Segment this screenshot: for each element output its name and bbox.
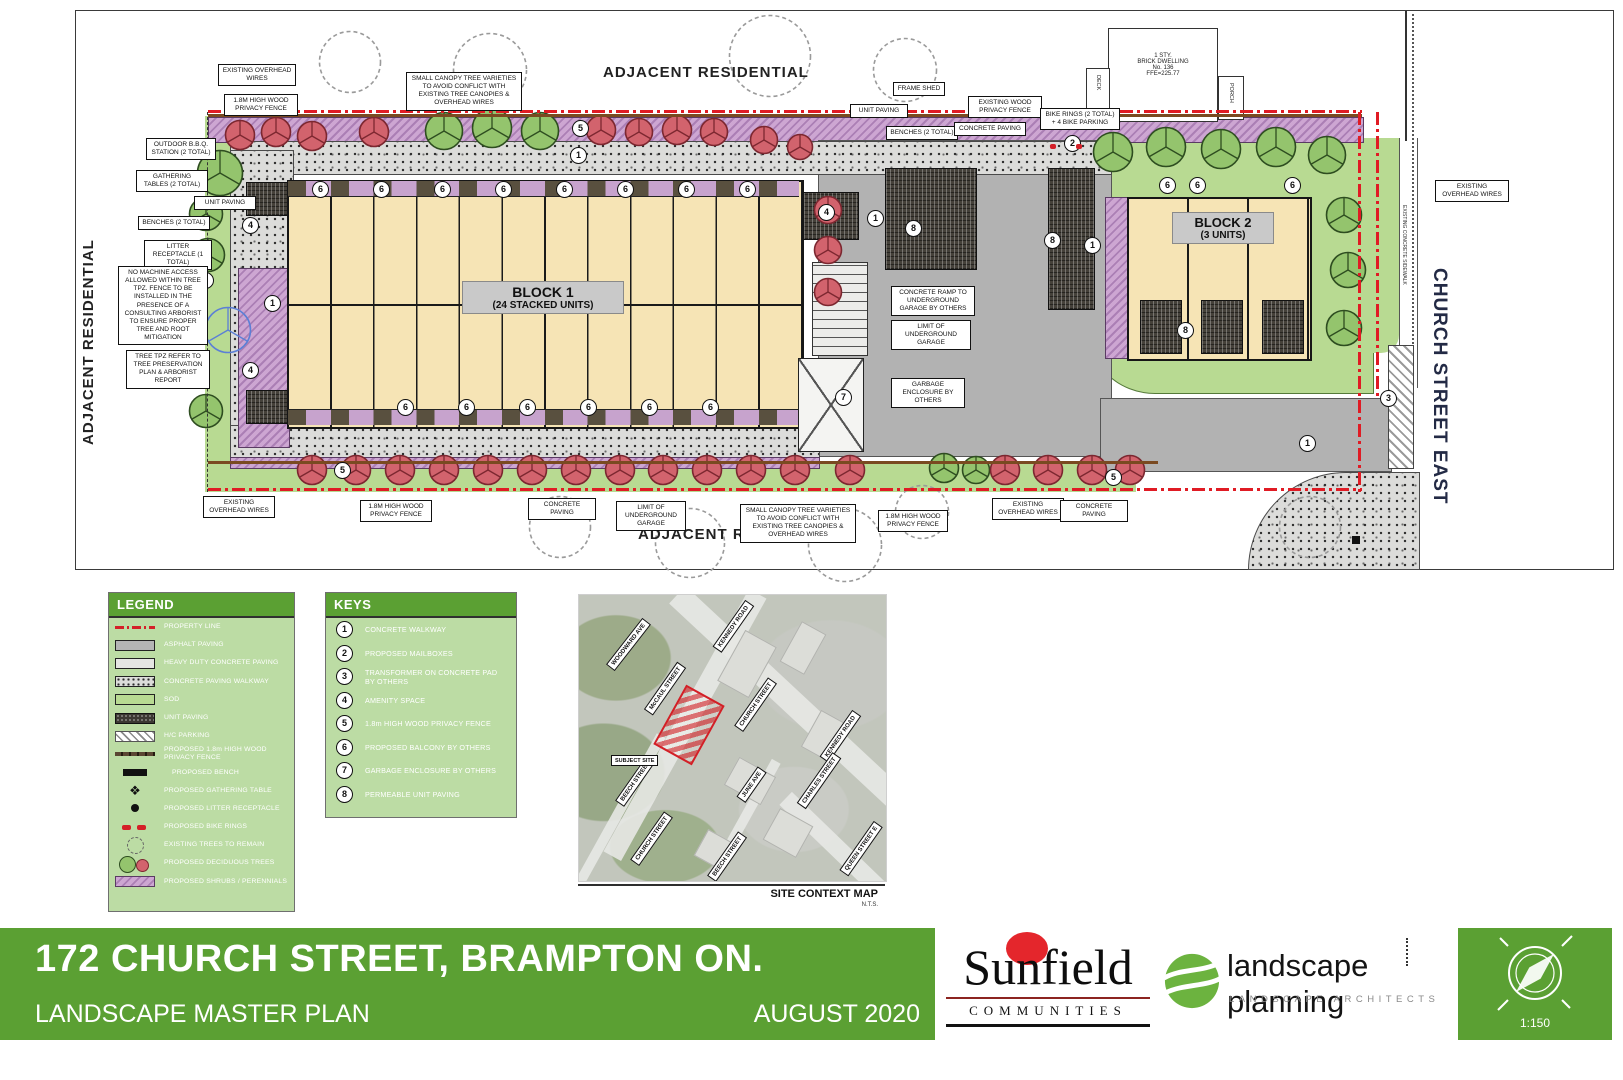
- existing-tree-icon: [728, 14, 812, 98]
- block2-label: BLOCK 2 (3 UNITS): [1172, 212, 1274, 244]
- deciduous-tree-icon: [1200, 128, 1242, 170]
- map-scale-note: N.T.S.: [578, 902, 878, 908]
- key-number: 4: [336, 692, 353, 709]
- deciduous-tree-icon: [472, 454, 504, 486]
- key-marker: 6: [617, 181, 634, 198]
- legend-item: SOD: [109, 691, 294, 709]
- key-item: 1CONCRETE WALKWAY: [326, 618, 516, 642]
- key-label: CONCRETE WALKWAY: [365, 625, 446, 634]
- annotation-callout: EXISTING WOOD PRIVACY FENCE: [968, 96, 1042, 118]
- annotation-callout: FRAME SHED: [893, 82, 945, 96]
- key-marker: 6: [739, 181, 756, 198]
- block2-entry-paving: [1201, 300, 1243, 354]
- legend-list: PROPERTY LINEASPHALT PAVINGHEAVY DUTY CO…: [109, 618, 294, 891]
- church-street-east-label: CHURCH STREET EAST: [1428, 268, 1450, 548]
- deciduous-tree-icon: [624, 117, 654, 147]
- sunfield-rule: [946, 997, 1150, 999]
- sunfield-name: Sunfield: [942, 938, 1154, 996]
- key-item: 4AMENITY SPACE: [326, 689, 516, 713]
- key-item: 51.8m HIGH WOOD PRIVACY FENCE: [326, 712, 516, 736]
- legend-item: PROPOSED BENCH: [109, 764, 294, 782]
- annotation-callout: SMALL CANOPY TREE VARIETIES TO AVOID CON…: [406, 72, 522, 111]
- legend-item: PROPOSED SHRUBS / PERENNIALS: [109, 873, 294, 891]
- key-marker: 6: [312, 181, 329, 198]
- annotation-callout: CONCRETE RAMP TO UNDERGROUND GARAGE BY O…: [891, 286, 975, 316]
- property-line-right: [1358, 112, 1361, 492]
- existing-tree-icon: [204, 306, 252, 354]
- legend-item: ASPHALT PAVING: [109, 636, 294, 654]
- deciduous-tree-icon: [260, 116, 292, 148]
- legend-swatch-bench: [123, 769, 147, 776]
- annotation-callout: CONCRETE PAVING: [1060, 500, 1128, 522]
- annotation-callout: NO MACHINE ACCESS ALLOWED WITHIN TREE TP…: [118, 266, 208, 345]
- existing-dwelling: 1 STY. BRICK DWELLING No. 136 FFE=225.77: [1108, 28, 1218, 122]
- annotation-callout: GATHERING TABLES (2 TOTAL): [136, 170, 208, 192]
- key-marker: 6: [641, 399, 658, 416]
- annotation-callout: CONCRETE PAVING: [954, 122, 1026, 136]
- curb-apron-hatch: [1388, 345, 1414, 469]
- street-label: WOODWARD AVE: [606, 618, 651, 671]
- legend-item: HEAVY DUTY CONCRETE PAVING: [109, 654, 294, 672]
- annotation-callout: LIMIT OF UNDERGROUND GARAGE: [616, 501, 686, 531]
- keys-title: KEYS: [326, 593, 516, 618]
- key-marker: 6: [1189, 177, 1206, 194]
- annotation-callout: LIMIT OF UNDERGROUND GARAGE: [891, 320, 971, 350]
- legend-swatch-bike-rings: [115, 822, 155, 833]
- key-marker: 4: [818, 204, 835, 221]
- deciduous-tree-icon: [961, 455, 991, 485]
- block1-subtitle: (24 STACKED UNITS): [467, 300, 619, 311]
- annotation-callout: UNIT PAVING: [194, 196, 256, 210]
- key-item: 6PROPOSED BALCONY BY OTHERS: [326, 736, 516, 760]
- deciduous-tree-icon: [516, 454, 548, 486]
- annotation-callout: BENCHES (2 TOTAL): [138, 216, 210, 230]
- property-line-bottom: [208, 488, 1362, 491]
- deciduous-tree-icon: [647, 454, 679, 486]
- logo-dotted-accent: [1406, 938, 1408, 966]
- legend-swatch-shrubs: [115, 876, 155, 887]
- legend-label: H/C PARKING: [164, 732, 288, 740]
- key-number: 8: [336, 786, 353, 803]
- deciduous-tree-icon: [1092, 131, 1134, 173]
- legend-label: PROPOSED DECIDUOUS TREES: [164, 859, 288, 867]
- key-marker: 8: [1177, 322, 1194, 339]
- key-label: PROPOSED MAILBOXES: [365, 649, 453, 658]
- annotation-callout: OUTDOOR B.B.Q. STATION (2 TOTAL): [146, 138, 216, 160]
- key-marker: 1: [570, 147, 587, 164]
- legend-swatch-proposed-trees: [115, 855, 155, 873]
- key-marker: 6: [702, 399, 719, 416]
- legend-label: PROPOSED BENCH: [172, 769, 288, 777]
- key-marker: 1: [867, 210, 884, 227]
- key-marker: 5: [572, 120, 589, 137]
- block2-entry-paving: [1262, 300, 1304, 354]
- annotation-callout: EXISTING OVERHEAD WIRES: [1435, 180, 1509, 202]
- key-number: 3: [336, 668, 353, 685]
- sunfield-sub: COMMUNITIES: [942, 1003, 1154, 1019]
- legend-swatch-asphalt: [115, 640, 155, 651]
- street-label: CHARLES STREET: [797, 752, 842, 809]
- deciduous-tree-icon: [786, 133, 814, 161]
- deciduous-tree-icon: [296, 454, 328, 486]
- key-marker: 1: [1084, 237, 1101, 254]
- deciduous-tree-icon: [358, 116, 390, 148]
- landscape-planning-sub: LANDSCAPE ARCHITECTS: [1229, 994, 1439, 1005]
- unit-paving-pad: [246, 390, 288, 424]
- key-item: 3TRANSFORMER ON CONCRETE PAD BY OTHERS: [326, 665, 516, 689]
- subject-site-label: SUBJECT SITE: [611, 755, 658, 766]
- key-number: 7: [336, 762, 353, 779]
- key-marker: 6: [1284, 177, 1301, 194]
- annotation-callout: 1.8m HIGH WOOD PRIVACY FENCE: [360, 500, 432, 522]
- north-arrow-icon: [1458, 930, 1612, 1016]
- key-marker: 6: [495, 181, 512, 198]
- annotation-callout: EXISTING OVERHEAD WIRES: [992, 498, 1064, 520]
- sunfield-logo: Sunfield COMMUNITIES: [942, 934, 1154, 1036]
- legend-swatch-unit-paving: [115, 713, 155, 724]
- key-number: 6: [336, 739, 353, 756]
- drawing-scale: 1:150: [1458, 1016, 1612, 1030]
- key-marker: 6: [556, 181, 573, 198]
- deciduous-tree-icon: [989, 454, 1021, 486]
- key-marker: 6: [519, 399, 536, 416]
- key-item: 7GARBAGE ENCLOSURE BY OTHERS: [326, 759, 516, 783]
- annotation-callout: BENCHES (2 TOTAL): [886, 126, 958, 140]
- key-marker: 6: [373, 181, 390, 198]
- key-label: GARBAGE ENCLOSURE BY OTHERS: [365, 766, 496, 775]
- deciduous-tree-icon: [428, 454, 460, 486]
- key-marker: 8: [905, 220, 922, 237]
- legend-item: CONCRETE PAVING WALKWAY: [109, 673, 294, 691]
- legend-item: PROPOSED 1.8m HIGH WOOD PRIVACY FENCE: [109, 745, 294, 763]
- legend-label: PROPOSED 1.8m HIGH WOOD PRIVACY FENCE: [164, 746, 288, 762]
- legend-swatch-gathering-table: [115, 784, 155, 798]
- block1-title: BLOCK 1: [467, 284, 619, 300]
- deciduous-tree-icon: [1076, 454, 1108, 486]
- leaf-swirl-icon: [1163, 952, 1221, 1010]
- deciduous-tree-icon: [560, 454, 592, 486]
- legend-item: PROPOSED LITTER RECEPTACLE: [109, 800, 294, 818]
- deciduous-tree-icon: [834, 454, 866, 486]
- landscape-planning-name: landscape planning: [1227, 948, 1455, 1020]
- key-label: PERMEABLE UNIT PAVING: [365, 790, 460, 799]
- legend-swatch-walkway: [115, 676, 155, 687]
- permeable-paving-area: [885, 168, 977, 270]
- legend-label: SOD: [164, 696, 288, 704]
- key-marker: 6: [458, 399, 475, 416]
- key-marker: 6: [397, 399, 414, 416]
- annotation-callout: BIKE RINGS (2 TOTAL) + 4 BIKE PARKING: [1040, 108, 1120, 130]
- block1-balcony-row-top: [288, 181, 799, 197]
- deciduous-tree-icon: [188, 393, 224, 429]
- planting-bed-block2: [1105, 197, 1129, 359]
- block2-title: BLOCK 2: [1177, 215, 1269, 230]
- map-caption-rule: [578, 884, 885, 886]
- legend-swatch-privacy-fence: [115, 752, 155, 756]
- drawing-title: LANDSCAPE MASTER PLAN: [35, 1000, 370, 1029]
- deciduous-tree-icon: [1307, 135, 1347, 175]
- road-curb-line: [1405, 11, 1407, 141]
- deciduous-tree-icon: [699, 117, 729, 147]
- legend-label: ASPHALT PAVING: [164, 641, 288, 649]
- key-marker: 4: [242, 362, 259, 379]
- legend-label: PROPERTY LINE: [164, 623, 288, 631]
- key-label: 1.8m HIGH WOOD PRIVACY FENCE: [365, 719, 491, 728]
- deciduous-tree-icon: [691, 454, 723, 486]
- deciduous-tree-icon: [604, 454, 636, 486]
- deciduous-tree-icon: [1032, 454, 1064, 486]
- map-caption: SITE CONTEXT MAP: [578, 888, 878, 900]
- block1-balcony-row-bottom: [288, 409, 799, 425]
- north-arrow-scale-box: 1:150: [1458, 928, 1612, 1040]
- bike-ring-marker: [1050, 144, 1056, 149]
- key-marker: 5: [334, 462, 351, 479]
- legend-swatch-heavy-concrete: [115, 658, 155, 669]
- legend-swatch-property-line: [115, 626, 155, 629]
- legend-item: PROPOSED BIKE RINGS: [109, 818, 294, 836]
- key-marker: 3: [1380, 390, 1397, 407]
- key-marker: 7: [835, 389, 852, 406]
- legend-swatch-hc-parking: [115, 731, 155, 742]
- legend-label: CONCRETE PAVING WALKWAY: [164, 678, 288, 686]
- legend-item: H/C PARKING: [109, 727, 294, 745]
- keys-list: 1CONCRETE WALKWAY2PROPOSED MAILBOXES3TRA…: [326, 618, 516, 806]
- annotation-callout: 1.8m HIGH WOOD PRIVACY FENCE: [224, 94, 298, 116]
- annotation-callout: GARBAGE ENCLOSURE BY OTHERS: [891, 378, 965, 408]
- key-marker: 8: [1044, 232, 1061, 249]
- legend-label: UNIT PAVING: [164, 714, 288, 722]
- deciduous-tree-icon: [384, 454, 416, 486]
- annotation-callout: EXISTING OVERHEAD WIRES: [218, 64, 296, 86]
- existing-tree-icon: [318, 30, 382, 94]
- annotation-callout: CONCRETE PAVING: [528, 498, 596, 520]
- deciduous-tree-icon: [735, 454, 767, 486]
- legend-item: PROPERTY LINE: [109, 618, 294, 636]
- legend-label: PROPOSED BIKE RINGS: [164, 823, 288, 831]
- sunfield-rule-2: [946, 1024, 1150, 1027]
- legend-label: PROPOSED SHRUBS / PERENNIALS: [164, 878, 288, 886]
- key-marker: 6: [580, 399, 597, 416]
- drawing-date: AUGUST 2020: [640, 1000, 920, 1029]
- legend-item: EXISTING TREES TO REMAIN: [109, 836, 294, 854]
- annotation-callout: TREE TPZ REFER TO TREE PRESERVATION PLAN…: [126, 350, 210, 389]
- wood-fence-line-bottom: [208, 461, 1158, 464]
- deciduous-tree-icon: [749, 125, 779, 155]
- boulevard-sod: [1363, 138, 1399, 353]
- deciduous-tree-icon: [224, 119, 256, 151]
- key-marker: 4: [242, 217, 259, 234]
- key-item: 2PROPOSED MAILBOXES: [326, 642, 516, 666]
- existing-sidewalk-label: EXISTING CONCRETE SIDEWALK: [1401, 205, 1407, 335]
- legend-item: UNIT PAVING: [109, 709, 294, 727]
- wood-fence-line-top: [208, 114, 1362, 117]
- landscape-master-plan-sheet: BLOCK 1 (24 STACKED UNITS) BLOCK 2 (3 UN…: [0, 0, 1623, 1080]
- key-marker: 6: [678, 181, 695, 198]
- adjacent-residential-top: ADJACENT RESIDENTIAL: [603, 64, 809, 81]
- legend-label: PROPOSED LITTER RECEPTACLE: [164, 805, 288, 813]
- map-building: [780, 621, 827, 675]
- survey-marker: [1352, 536, 1360, 544]
- legend-label: HEAVY DUTY CONCRETE PAVING: [164, 659, 288, 667]
- legend-title: LEGEND: [109, 593, 294, 618]
- garbage-enclosure: [798, 358, 864, 452]
- landscape-planning-logo: landscape planning LANDSCAPE ARCHITECTS: [1163, 948, 1455, 1030]
- keys-panel: KEYS 1CONCRETE WALKWAY2PROPOSED MAILBOXE…: [325, 592, 517, 818]
- property-line-right-2: [1376, 112, 1379, 398]
- key-label: TRANSFORMER ON CONCRETE PAD BY OTHERS: [365, 668, 506, 686]
- legend-swatch-sod: [115, 694, 155, 705]
- deciduous-tree-icon: [1329, 251, 1367, 289]
- property-line-top: [208, 110, 1362, 113]
- adjacent-residential-left: ADJACENT RESIDENTIAL: [80, 175, 97, 445]
- overhead-wires-line: [1412, 14, 1414, 344]
- deciduous-tree-icon: [520, 111, 560, 151]
- deciduous-tree-icon: [928, 452, 960, 484]
- legend-swatch-existing-tree: [115, 837, 155, 854]
- key-marker: 5: [1105, 469, 1122, 486]
- block2-subtitle: (3 UNITS): [1177, 230, 1269, 241]
- deciduous-tree-icon: [585, 114, 617, 146]
- legend-label: PROPOSED GATHERING TABLE: [164, 787, 288, 795]
- deciduous-tree-icon: [661, 114, 693, 146]
- key-number: 5: [336, 715, 353, 732]
- deciduous-tree-icon: [424, 111, 464, 151]
- legend-panel: LEGEND PROPERTY LINEASPHALT PAVINGHEAVY …: [108, 592, 295, 912]
- annotation-callout: 1.8m HIGH WOOD PRIVACY FENCE: [878, 510, 948, 532]
- deciduous-tree-icon: [1145, 126, 1187, 168]
- key-marker: 6: [1159, 177, 1176, 194]
- deciduous-tree-icon: [1255, 126, 1297, 168]
- deciduous-tree-icon: [813, 277, 843, 307]
- key-marker: 6: [434, 181, 451, 198]
- deciduous-tree-icon: [813, 235, 843, 265]
- existing-tree-icon: [1278, 495, 1342, 559]
- key-marker: 1: [1299, 435, 1316, 452]
- key-marker: 1: [264, 295, 281, 312]
- deciduous-tree-icon: [296, 120, 328, 152]
- annotation-callout: UNIT PAVING: [850, 104, 908, 118]
- project-title: 172 CHURCH STREET, BRAMPTON ON.: [35, 938, 763, 981]
- key-label: AMENITY SPACE: [365, 696, 425, 705]
- key-number: 1: [336, 621, 353, 638]
- legend-item: PROPOSED DECIDUOUS TREES: [109, 854, 294, 872]
- key-number: 2: [336, 645, 353, 662]
- annotation-callout: EXISTING OVERHEAD WIRES: [203, 496, 275, 518]
- block1-label: BLOCK 1 (24 STACKED UNITS): [462, 281, 624, 314]
- bike-ring-marker: [1076, 144, 1082, 149]
- site-context-map: WOODWARD AVE KENNEDY ROAD McCAUL STREET …: [578, 594, 887, 882]
- block2-entry-paving: [1140, 300, 1182, 354]
- key-item: 8PERMEABLE UNIT PAVING: [326, 783, 516, 807]
- key-label: PROPOSED BALCONY BY OTHERS: [365, 743, 491, 752]
- legend-item: PROPOSED GATHERING TABLE: [109, 782, 294, 800]
- legend-swatch-litter: [115, 803, 155, 814]
- deciduous-tree-icon: [779, 454, 811, 486]
- legend-label: EXISTING TREES TO REMAIN: [164, 841, 288, 849]
- annotation-callout: SMALL CANOPY TREE VARIETIES TO AVOID CON…: [740, 504, 856, 543]
